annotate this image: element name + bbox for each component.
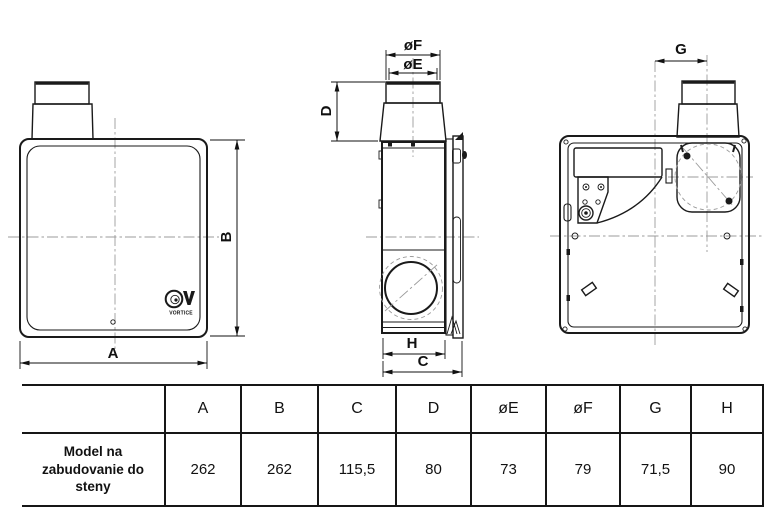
bracket-screw-4 xyxy=(596,200,600,204)
dim-c-label: C xyxy=(418,353,429,370)
bracket-screw-1-center xyxy=(585,186,587,188)
dim-of-label: øF xyxy=(404,37,422,54)
rear-tab-left-lower xyxy=(567,295,571,301)
side-flange-slot xyxy=(453,217,461,283)
front-duct-base xyxy=(32,104,93,139)
col-header-oe: øE xyxy=(471,385,546,433)
fan-dimensional-drawing-page: VORTICE B A øF øE xyxy=(0,0,770,512)
front-body-inner-panel xyxy=(27,146,200,330)
vortice-logo: VORTICE xyxy=(166,291,195,317)
value-a: 262 xyxy=(165,433,241,506)
value-b: 262 xyxy=(241,433,318,506)
table-header-row: A B C D øE øF G H xyxy=(22,385,763,433)
rear-corner-screw-tl xyxy=(564,140,568,144)
rear-small-slot xyxy=(666,169,672,183)
dim-b-label: B xyxy=(218,231,235,242)
rear-scroll-curve xyxy=(597,177,662,223)
front-indicator-hole xyxy=(111,320,115,324)
col-header-a: A xyxy=(165,385,241,433)
model-row-header: Model na zabudovanie do steny xyxy=(22,433,165,506)
col-header-b: B xyxy=(241,385,318,433)
cable-gland-center xyxy=(584,211,588,215)
dimensional-drawing: VORTICE B A øF øE xyxy=(0,0,770,384)
rear-outlet-screw-2 xyxy=(726,198,733,205)
front-duct-collar xyxy=(35,82,89,104)
rear-tab-right-upper xyxy=(740,259,744,265)
col-header-d: D xyxy=(396,385,471,433)
table-value-row: Model na zabudovanie do steny 262 262 11… xyxy=(22,433,763,506)
side-view: øF øE D xyxy=(318,37,479,377)
side-top-clip-right xyxy=(411,143,415,147)
rear-corner-screw-bl xyxy=(563,327,567,331)
rear-body-outer xyxy=(560,136,749,333)
side-top-clip-left xyxy=(388,143,392,147)
dimensions-table: A B C D øE øF G H Model na zabudovanie d… xyxy=(22,384,764,507)
rear-outlet-screw-1 xyxy=(684,153,691,160)
value-h: 90 xyxy=(691,433,763,506)
bracket-screw-3 xyxy=(583,200,587,204)
col-header-g: G xyxy=(620,385,691,433)
side-flange-boss xyxy=(453,149,461,163)
dim-g-label: G xyxy=(675,41,687,58)
rear-keyhole-slot-left xyxy=(582,282,597,295)
logo-v-glyph xyxy=(183,291,195,305)
rear-view: G xyxy=(550,41,762,347)
value-d: 80 xyxy=(396,433,471,506)
col-header-h: H xyxy=(691,385,763,433)
rear-outlet-diagonal-centerline xyxy=(683,148,734,207)
front-body-outer xyxy=(20,139,207,337)
rear-terminal-box xyxy=(574,148,662,177)
dim-d-label: D xyxy=(318,105,335,116)
value-g: 71,5 xyxy=(620,433,691,506)
logo-ring xyxy=(166,291,183,308)
col-header-c: C xyxy=(318,385,396,433)
rear-tab-left-upper xyxy=(567,249,571,255)
logo-swirl-center xyxy=(174,298,177,301)
value-c: 115,5 xyxy=(318,433,396,506)
front-view: VORTICE B A xyxy=(8,82,245,369)
rear-corner-screw-tr xyxy=(742,139,746,143)
dim-h-label: H xyxy=(407,335,418,352)
col-header-of: øF xyxy=(546,385,620,433)
logo-wordmark: VORTICE xyxy=(169,311,193,317)
value-oe: 73 xyxy=(471,433,546,506)
side-flange-knob xyxy=(462,151,467,159)
slot-shape xyxy=(724,283,739,296)
side-outlet-diagonal-centerline xyxy=(385,264,438,311)
rear-tab-right-lower xyxy=(740,306,744,312)
slot-shape xyxy=(582,282,597,295)
bracket-screw-2-center xyxy=(600,186,602,188)
dim-a-label: A xyxy=(108,345,119,362)
dim-oe-label: øE xyxy=(403,56,422,73)
rear-keyhole-slot-right xyxy=(724,283,739,296)
table-corner-cell xyxy=(22,385,165,433)
value-of: 79 xyxy=(546,433,620,506)
rear-duct-base xyxy=(677,104,739,137)
rear-duct-collar xyxy=(682,81,735,104)
